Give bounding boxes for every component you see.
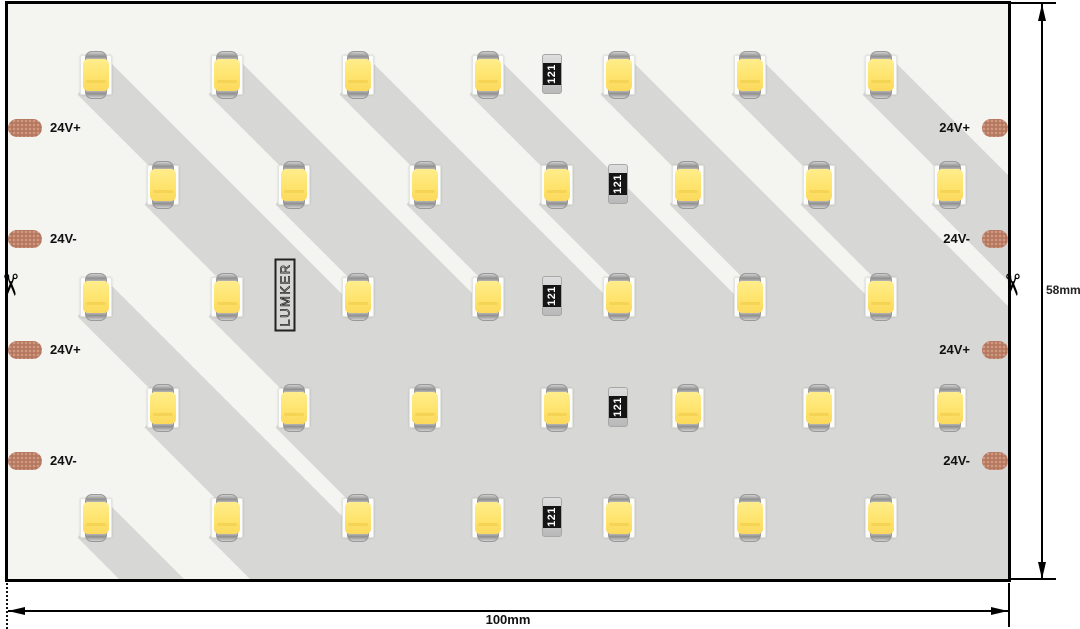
resistor-chip: 121 — [542, 497, 562, 537]
resistor-body: 121 — [543, 506, 561, 528]
led-strip-diagram: { "board": { "logo_text": "LUMKER", "res… — [0, 0, 1080, 629]
led-die-seam — [609, 80, 629, 83]
resistor-chip: 121 — [542, 276, 562, 316]
resistor-chip: 121 — [608, 164, 628, 204]
led-die-seam — [153, 413, 173, 416]
led-chip — [211, 55, 243, 95]
led-chip — [342, 498, 374, 538]
led-die-seam — [940, 413, 960, 416]
led-die-seam — [284, 190, 304, 193]
resistor-chip: 121 — [608, 387, 628, 427]
led-chip — [865, 55, 897, 95]
led-die — [475, 59, 501, 91]
dimension-tick-top — [1010, 2, 1056, 4]
led-die — [544, 392, 570, 424]
resistor-body: 121 — [543, 285, 561, 307]
led-die-seam — [678, 413, 698, 416]
led-die-seam — [478, 80, 498, 83]
led-die — [281, 392, 307, 424]
led-chip — [803, 165, 835, 205]
strip-board: 12112112112112124V+24V-24V+24V-24V+24V-2… — [5, 1, 1011, 582]
led-chip — [541, 388, 573, 428]
resistor-body: 121 — [609, 173, 627, 195]
led-chip — [672, 165, 704, 205]
led-chip — [541, 165, 573, 205]
cut-mark-scissors-right-icon: ✂ — [996, 270, 1026, 300]
led-chip — [342, 277, 374, 317]
led-die-seam — [348, 523, 368, 526]
led-die — [214, 59, 240, 91]
led-die-seam — [478, 302, 498, 305]
resistor-label: 121 — [546, 64, 558, 84]
led-die-seam — [547, 190, 567, 193]
led-die — [675, 392, 701, 424]
led-die — [214, 281, 240, 313]
resistor-label: 121 — [612, 174, 624, 194]
led-chip — [603, 277, 635, 317]
led-die-seam — [740, 302, 760, 305]
brand-logo: LUMKER — [274, 258, 296, 332]
led-die-seam — [809, 190, 829, 193]
pad-voltage-label: 24V- — [858, 452, 970, 470]
pad-voltage-label: 24V+ — [50, 119, 81, 137]
led-die — [937, 392, 963, 424]
resistor-label: 121 — [546, 286, 558, 306]
led-chip — [934, 388, 966, 428]
led-die-seam — [678, 190, 698, 193]
led-die-seam — [217, 523, 237, 526]
led-die — [83, 281, 109, 313]
led-die — [150, 169, 176, 201]
led-die — [737, 59, 763, 91]
solder-pad-left — [8, 452, 42, 470]
led-die — [606, 281, 632, 313]
led-chip — [472, 55, 504, 95]
led-chip — [934, 165, 966, 205]
led-die — [475, 502, 501, 534]
led-die-seam — [86, 80, 106, 83]
led-die-seam — [217, 302, 237, 305]
led-chip — [865, 277, 897, 317]
height-dimension-label: 58mm — [1046, 283, 1080, 297]
led-die-seam — [547, 413, 567, 416]
led-die-seam — [86, 523, 106, 526]
led-chip — [147, 165, 179, 205]
resistor-body: 121 — [609, 396, 627, 418]
solder-pad-right — [982, 452, 1008, 470]
led-die-seam — [478, 523, 498, 526]
led-die — [214, 502, 240, 534]
solder-pad-left — [8, 341, 42, 359]
height-dimension-line — [1041, 4, 1043, 579]
led-chip — [734, 55, 766, 95]
led-chip — [80, 55, 112, 95]
led-die — [544, 169, 570, 201]
arrow-up-icon — [1038, 4, 1046, 21]
led-die — [806, 392, 832, 424]
led-die — [83, 502, 109, 534]
pad-voltage-label: 24V+ — [858, 341, 970, 359]
led-die-seam — [284, 413, 304, 416]
led-die-seam — [809, 413, 829, 416]
led-die — [806, 169, 832, 201]
led-die — [345, 281, 371, 313]
led-die-seam — [86, 302, 106, 305]
led-die — [83, 59, 109, 91]
dimension-tick-bottom — [1010, 578, 1056, 580]
led-chip — [211, 277, 243, 317]
solder-pad-right — [982, 119, 1008, 137]
width-dimension-label: 100mm — [0, 612, 1016, 627]
led-die — [937, 169, 963, 201]
pad-voltage-label: 24V+ — [50, 341, 81, 359]
led-die — [868, 59, 894, 91]
solder-pad-right — [982, 230, 1008, 248]
led-die-seam — [871, 302, 891, 305]
pad-voltage-label: 24V- — [50, 452, 77, 470]
led-chip — [472, 498, 504, 538]
led-die-seam — [940, 190, 960, 193]
led-die-seam — [740, 523, 760, 526]
led-die — [606, 59, 632, 91]
led-chip — [803, 388, 835, 428]
led-chip — [865, 498, 897, 538]
resistor-label: 121 — [546, 507, 558, 527]
pad-voltage-label: 24V- — [858, 230, 970, 248]
led-chip — [409, 165, 441, 205]
led-die-seam — [348, 80, 368, 83]
led-die — [737, 502, 763, 534]
led-die — [345, 502, 371, 534]
led-die-seam — [871, 80, 891, 83]
led-die-seam — [348, 302, 368, 305]
led-chip — [603, 498, 635, 538]
led-die — [150, 392, 176, 424]
led-chip — [278, 165, 310, 205]
led-die-seam — [609, 523, 629, 526]
solder-pad-left — [8, 230, 42, 248]
led-die-seam — [415, 413, 435, 416]
cut-mark-scissors-left-icon: ✂ — [0, 270, 24, 300]
led-die — [675, 169, 701, 201]
led-chip — [603, 55, 635, 95]
pad-voltage-label: 24V+ — [858, 119, 970, 137]
led-die — [281, 169, 307, 201]
led-chip — [472, 277, 504, 317]
led-chip — [80, 277, 112, 317]
led-chip — [342, 55, 374, 95]
led-die — [345, 59, 371, 91]
led-die-seam — [415, 190, 435, 193]
led-die — [475, 281, 501, 313]
led-chip — [734, 498, 766, 538]
solder-pad-left — [8, 119, 42, 137]
led-die-seam — [153, 190, 173, 193]
led-chip — [278, 388, 310, 428]
led-die-seam — [871, 523, 891, 526]
led-die — [737, 281, 763, 313]
resistor-body: 121 — [543, 63, 561, 85]
led-die-seam — [609, 302, 629, 305]
led-chip — [409, 388, 441, 428]
led-chip — [147, 388, 179, 428]
arrow-down-icon — [1038, 562, 1046, 579]
led-chip — [80, 498, 112, 538]
brand-logo-text: LUMKER — [278, 263, 293, 326]
led-die — [606, 502, 632, 534]
led-chip — [211, 498, 243, 538]
led-chip — [734, 277, 766, 317]
led-die-seam — [740, 80, 760, 83]
led-die — [412, 392, 438, 424]
led-die — [868, 281, 894, 313]
resistor-chip: 121 — [542, 54, 562, 94]
led-die — [412, 169, 438, 201]
led-die-seam — [217, 80, 237, 83]
pad-voltage-label: 24V- — [50, 230, 77, 248]
led-die — [868, 502, 894, 534]
led-chip — [672, 388, 704, 428]
resistor-label: 121 — [612, 397, 624, 417]
solder-pad-right — [982, 341, 1008, 359]
